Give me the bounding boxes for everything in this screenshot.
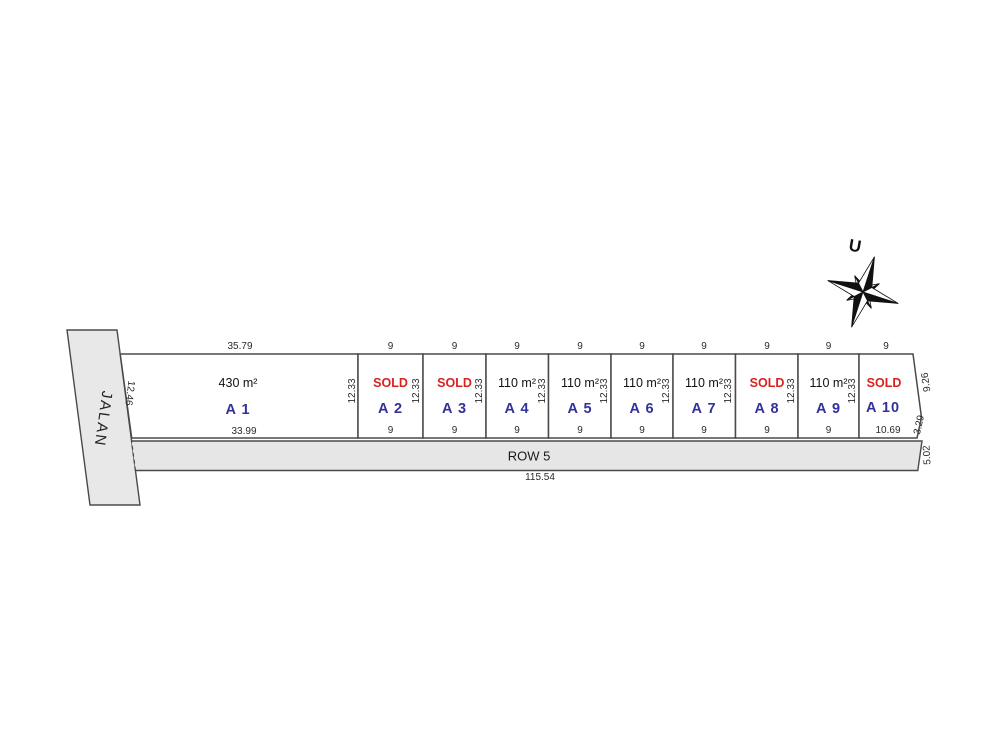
lot-a4-area: 110 m² — [498, 377, 536, 390]
lot-a2-right-dimension: 12.33 — [412, 378, 422, 403]
lot-a1-area: 430 m² — [219, 377, 258, 390]
lot-a6-right-dimension: 12.33 — [662, 378, 672, 403]
lot-a5-area: 110 m² — [561, 377, 599, 390]
lot-a2-bottom-dimension: 9 — [388, 426, 394, 436]
lot-a8-status: SOLD — [750, 377, 785, 390]
lot-a5-right-dimension: 12.33 — [600, 378, 610, 403]
lot-a5-bottom-dimension: 9 — [577, 426, 583, 436]
lot-a10-name: A 10 — [866, 401, 900, 416]
lot-a7-top-dimension: 9 — [701, 342, 707, 352]
lot-a1-bottom-dimension: 33.99 — [231, 427, 256, 437]
lot-a6-bottom-dimension: 9 — [639, 426, 645, 436]
lot-a10-top-dimension: 9 — [883, 342, 889, 352]
lot-a7-area: 110 m² — [685, 377, 723, 390]
lot-a6-name: A 6 — [629, 402, 654, 417]
lot-a8-right-dimension: 12.33 — [787, 378, 797, 403]
lot-a8-name: A 8 — [754, 402, 779, 417]
lot-a7-name: A 7 — [691, 402, 716, 417]
lot-a2-name: A 2 — [378, 402, 403, 417]
lot-a2-top-dimension: 9 — [388, 342, 394, 352]
lot-a6-area: 110 m² — [623, 377, 661, 390]
lot-a8-top-dimension: 9 — [764, 342, 770, 352]
compass-rose-icon — [816, 245, 909, 338]
lot-a9-right-dimension: 12.33 — [848, 378, 858, 403]
lot-a9-bottom-dimension: 9 — [826, 426, 832, 436]
lot-a3-top-dimension: 9 — [452, 342, 458, 352]
site-plan: JALAN U 35.79 9 9 9 9 9 9 9 9 9 33.99 9 … — [0, 0, 1000, 750]
lot-a1-top-dimension: 35.79 — [227, 342, 252, 352]
lot-a3-bottom-dimension: 9 — [452, 426, 458, 436]
lot-a10-bottom-dimension: 10.69 — [875, 426, 900, 436]
lot-a4-name: A 4 — [504, 402, 529, 417]
lot-a10-status: SOLD — [867, 377, 902, 390]
lot-a10-right-edge-dimension: 9.26 — [920, 372, 933, 393]
lot-a4-right-dimension: 12.33 — [538, 378, 548, 403]
lot-a4-top-dimension: 9 — [514, 342, 520, 352]
lot-a8-bottom-dimension: 9 — [764, 426, 770, 436]
lot-a2-status: SOLD — [373, 377, 408, 390]
lot-a6-top-dimension: 9 — [639, 342, 645, 352]
lot-a3-status: SOLD — [437, 377, 472, 390]
row-strip-right-dimension: 5.02 — [922, 445, 933, 465]
lot-a5-name: A 5 — [567, 402, 592, 417]
lot-a3-name: A 3 — [442, 402, 467, 417]
lot-a7-right-dimension: 12.33 — [724, 378, 734, 403]
lot-a4-bottom-dimension: 9 — [514, 426, 520, 436]
lot-a9-area: 110 m² — [810, 377, 848, 390]
lot-a1-right-dimension: 12.33 — [348, 378, 358, 403]
lot-a5-top-dimension: 9 — [577, 342, 583, 352]
lot-a7-bottom-dimension: 9 — [701, 426, 707, 436]
lot-a9-name: A 9 — [816, 402, 841, 417]
row-strip-total-dimension: 115.54 — [525, 473, 555, 483]
lot-a9-top-dimension: 9 — [826, 342, 832, 352]
lot-a3-right-dimension: 12.33 — [475, 378, 485, 403]
row-strip-label: ROW 5 — [508, 450, 551, 463]
lot-a1-name: A 1 — [225, 403, 250, 418]
